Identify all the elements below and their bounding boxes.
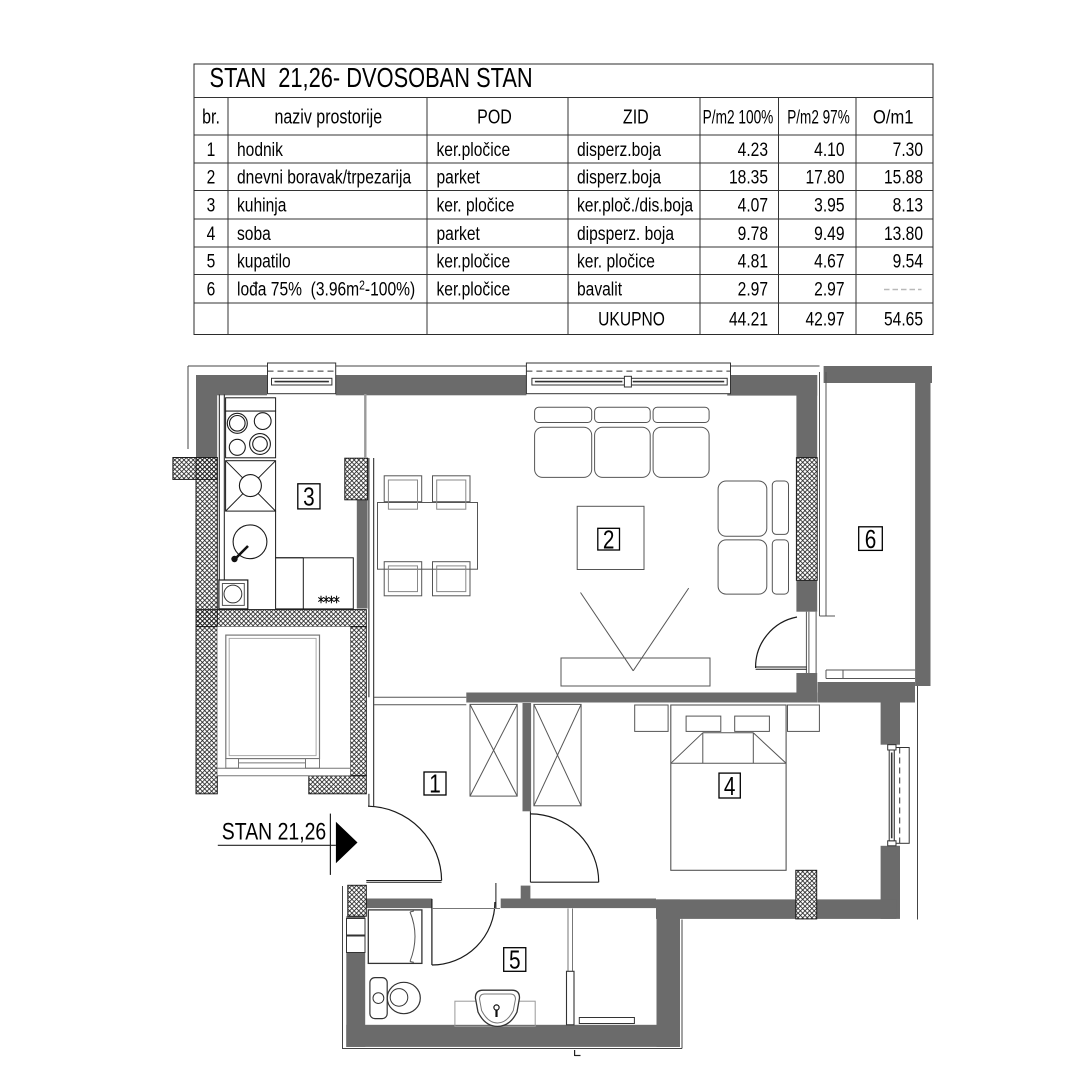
svg-text:ker.pločice: ker.pločice <box>437 138 511 160</box>
svg-text:soba: soba <box>237 222 271 244</box>
svg-text:7.30: 7.30 <box>893 138 923 160</box>
svg-text:hodnik: hodnik <box>237 138 283 160</box>
svg-text:STAN 21,26: STAN 21,26 <box>222 817 326 845</box>
svg-text:2.97: 2.97 <box>738 278 768 300</box>
svg-text:ker.pločice: ker.pločice <box>437 278 511 300</box>
svg-text:6: 6 <box>207 278 216 300</box>
svg-text:44.21: 44.21 <box>729 308 768 330</box>
svg-text:1: 1 <box>207 138 216 160</box>
svg-text:18.35: 18.35 <box>729 166 768 188</box>
svg-text:4.81: 4.81 <box>738 250 768 272</box>
svg-text:bavalit: bavalit <box>577 278 622 300</box>
svg-text:15.88: 15.88 <box>884 166 923 188</box>
svg-text:4.67: 4.67 <box>814 250 844 272</box>
svg-text:parket: parket <box>437 222 480 244</box>
svg-text:4: 4 <box>207 222 216 244</box>
svg-text:5: 5 <box>509 946 521 975</box>
svg-text:3: 3 <box>207 194 216 216</box>
svg-text:42.97: 42.97 <box>805 308 844 330</box>
svg-text:disperz.boja: disperz.boja <box>577 166 661 188</box>
svg-text:dnevni boravak/trpezarija: dnevni boravak/trpezarija <box>237 166 411 188</box>
svg-text:4.07: 4.07 <box>738 194 768 216</box>
svg-text:ker. pločice: ker. pločice <box>577 250 655 272</box>
svg-text:parket: parket <box>437 166 480 188</box>
svg-text:naziv prostorije: naziv prostorije <box>274 106 382 128</box>
svg-text:3.95: 3.95 <box>814 194 844 216</box>
svg-text:POD: POD <box>477 106 512 128</box>
svg-text:6: 6 <box>865 525 877 554</box>
svg-text:2.97: 2.97 <box>814 278 844 300</box>
svg-text:9.49: 9.49 <box>814 222 844 244</box>
svg-text:lođa 75% (3.96m2-100%): lođa 75% (3.96m2-100%) <box>237 278 415 300</box>
svg-text:4: 4 <box>724 772 736 801</box>
svg-text:13.80: 13.80 <box>884 222 923 244</box>
svg-text:9.78: 9.78 <box>738 222 768 244</box>
svg-text:kuhinja: kuhinja <box>237 194 287 216</box>
svg-text:P/m2 100%: P/m2 100% <box>703 106 774 128</box>
svg-text:ZID: ZID <box>623 106 649 128</box>
svg-text:O/m1: O/m1 <box>873 106 913 127</box>
svg-text:UKUPNO: UKUPNO <box>598 308 665 330</box>
svg-text:dipsperz. boja: dipsperz. boja <box>577 222 674 244</box>
svg-text:54.65: 54.65 <box>884 308 923 330</box>
svg-text:P/m2 97%: P/m2 97% <box>787 107 850 128</box>
svg-text:5: 5 <box>207 250 216 272</box>
svg-text:br.: br. <box>202 106 220 128</box>
svg-text:kupatilo: kupatilo <box>237 250 291 272</box>
svg-text:4.10: 4.10 <box>814 138 844 160</box>
svg-text:ker.ploč./dis.boja: ker.ploč./dis.boja <box>577 194 693 216</box>
svg-text:ker. pločice: ker. pločice <box>437 194 515 216</box>
svg-text:8.13: 8.13 <box>893 194 923 216</box>
svg-text:ker.pločice: ker.pločice <box>437 250 511 272</box>
svg-text:3: 3 <box>303 482 315 511</box>
svg-text:2: 2 <box>207 166 216 188</box>
svg-text:1: 1 <box>429 770 441 799</box>
svg-text:STAN 21,26- DVOSOBAN STAN: STAN 21,26- DVOSOBAN STAN <box>210 64 533 94</box>
svg-text:disperz.boja: disperz.boja <box>577 138 661 160</box>
svg-text:17.80: 17.80 <box>805 166 844 188</box>
svg-text:2: 2 <box>603 525 615 554</box>
svg-text:9.54: 9.54 <box>893 250 923 272</box>
svg-text:4.23: 4.23 <box>738 138 768 160</box>
